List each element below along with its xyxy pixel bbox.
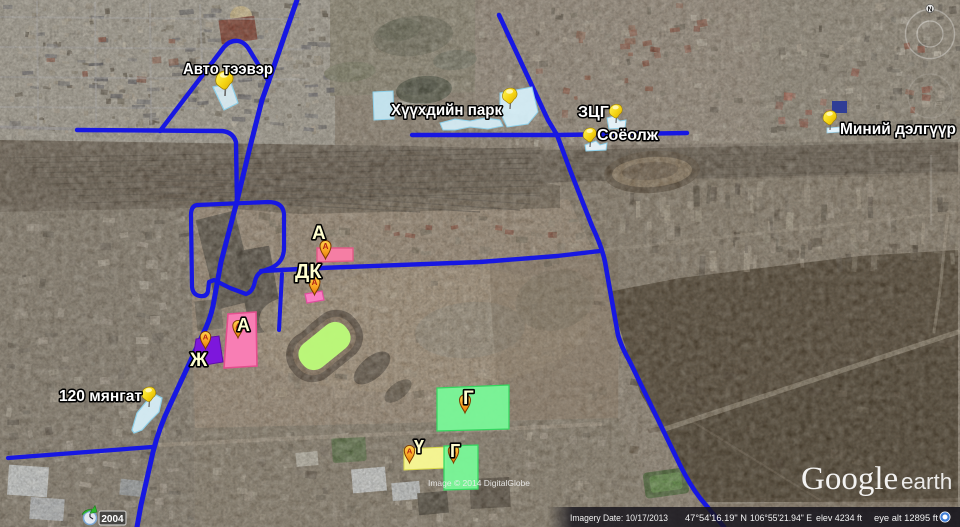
svg-text:Авто тээвэр: Авто тээвэр (183, 61, 273, 78)
svg-text:47°54'16.19" N: 47°54'16.19" N (685, 513, 747, 524)
svg-text:Imagery Date: 10/17/2013: Imagery Date: 10/17/2013 (570, 513, 668, 524)
svg-text:Соёолж: Соёолж (597, 127, 659, 144)
svg-text:Хүүхдийн парк: Хүүхдийн парк (391, 102, 503, 119)
svg-text:earth: earth (901, 469, 952, 494)
svg-text:А: А (407, 446, 413, 455)
svg-text:Image © 2014 DigitalGlobe: Image © 2014 DigitalGlobe (428, 478, 530, 488)
svg-text:А: А (312, 223, 326, 244)
svg-text:Г: Г (450, 441, 460, 461)
svg-text:N: N (927, 7, 932, 14)
svg-text:ДК: ДК (295, 261, 322, 283)
svg-text:2004: 2004 (101, 514, 124, 525)
svg-text:А: А (237, 315, 250, 335)
svg-text:elev 4234 ft: elev 4234 ft (816, 513, 862, 524)
svg-text:120 мянгат: 120 мянгат (59, 388, 142, 405)
svg-text:106°55'21.94" E: 106°55'21.94" E (750, 513, 812, 524)
svg-text:А: А (203, 332, 209, 341)
svg-text:Г: Г (463, 388, 474, 409)
svg-text:eye alt 12895 ft: eye alt 12895 ft (874, 513, 938, 524)
svg-text:Ү: Ү (414, 437, 425, 457)
svg-text:Миний дэлгүүр: Миний дэлгүүр (840, 121, 956, 138)
svg-text:Google: Google (801, 461, 898, 497)
svg-text:Ж: Ж (189, 350, 208, 371)
svg-text:ЗЦГ: ЗЦГ (578, 104, 609, 121)
